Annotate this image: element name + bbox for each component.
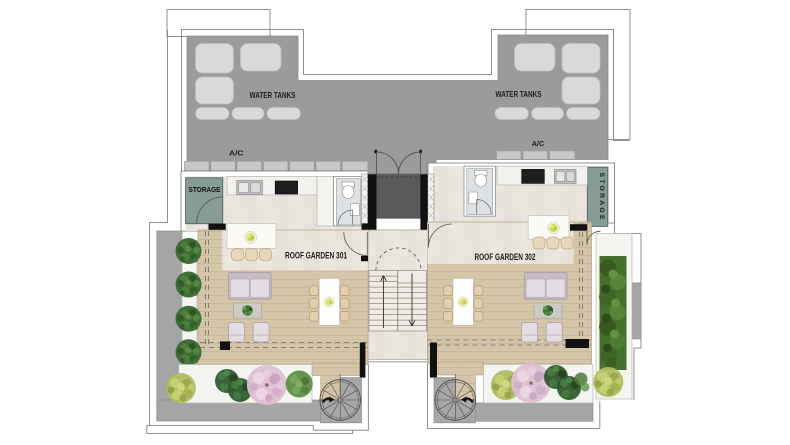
svg-text:ROOF GARDEN 301: ROOF GARDEN 301 — [285, 251, 347, 261]
svg-text:WATER TANKS: WATER TANKS — [496, 90, 543, 99]
svg-text:ROOF GARDEN 302: ROOF GARDEN 302 — [475, 252, 536, 262]
svg-text:A/C: A/C — [229, 149, 244, 158]
svg-text:WATER TANKS: WATER TANKS — [250, 91, 297, 100]
svg-text:STORAGE: STORAGE — [189, 187, 221, 194]
svg-text:A/C: A/C — [532, 139, 545, 148]
